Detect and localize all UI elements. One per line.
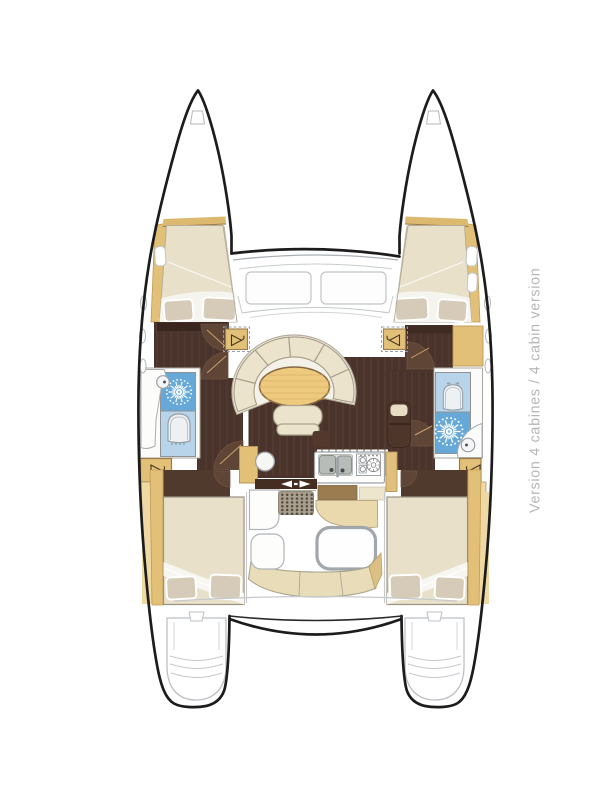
svg-text:Version 4 cabines / 4 cabin ve: Version 4 cabines / 4 cabin version [528,268,544,513]
